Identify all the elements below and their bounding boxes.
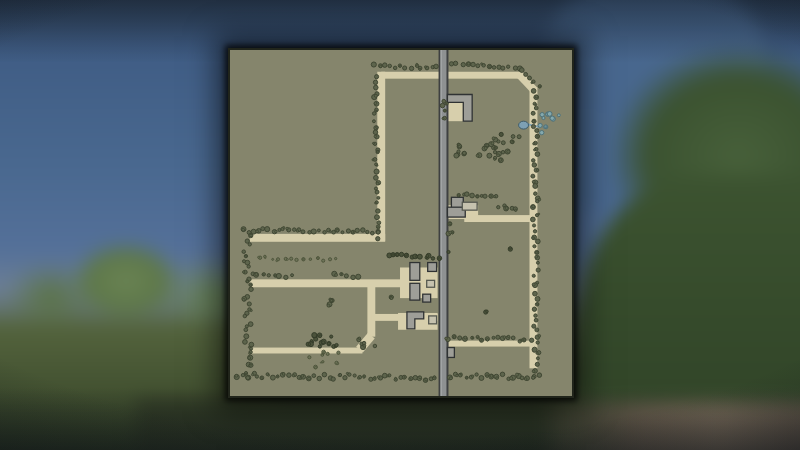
tree-icon [535, 129, 539, 133]
tree-icon [449, 231, 452, 234]
tree-icon [496, 377, 499, 380]
tree-icon [357, 377, 359, 379]
tree-icon [282, 373, 285, 376]
tree-icon [338, 374, 340, 376]
tree-icon [533, 184, 538, 189]
tree-icon [534, 314, 538, 318]
tree-icon [250, 234, 253, 237]
tree-icon [323, 352, 325, 354]
tree-icon [533, 230, 536, 233]
tree-icon [458, 144, 460, 146]
tree-icon [475, 373, 478, 376]
tree-icon [248, 346, 250, 348]
tree-icon [505, 207, 508, 210]
tree-icon [375, 202, 377, 204]
tree-icon [539, 86, 541, 88]
tree-icon [507, 335, 509, 337]
tree-icon [472, 337, 474, 339]
tree-icon [557, 114, 560, 117]
tree-icon [323, 231, 327, 235]
tree-icon [515, 209, 517, 211]
tree-icon [536, 352, 538, 354]
tree-icon [458, 195, 460, 197]
path-horizontal-3 [252, 348, 363, 354]
tree-icon [534, 106, 538, 110]
tree-icon [409, 66, 413, 70]
tree-icon [308, 343, 311, 346]
tree-icon [374, 175, 379, 180]
tree-icon [374, 94, 377, 97]
tree-icon [328, 342, 331, 345]
tree-icon [286, 258, 288, 260]
tree-icon [337, 363, 339, 365]
tree-icon [337, 351, 340, 354]
tree-icon [537, 373, 542, 378]
tree-icon [392, 254, 395, 257]
tree-icon [532, 237, 535, 240]
tree-icon [376, 126, 379, 129]
tree-icon [370, 231, 374, 235]
tree-icon [453, 336, 455, 338]
tree-icon [517, 135, 521, 139]
tree-icon [375, 190, 379, 194]
tree-icon [520, 376, 524, 380]
tree-icon [531, 124, 535, 128]
tree-icon [531, 159, 535, 163]
tree-icon [242, 250, 246, 254]
tree-icon [388, 64, 392, 68]
tree-icon [317, 229, 320, 232]
tree-icon [535, 362, 539, 366]
tree-icon [322, 341, 325, 344]
minimap[interactable] [228, 48, 574, 398]
tree-icon [426, 254, 429, 257]
tree-icon [373, 130, 378, 135]
tree-icon [296, 230, 298, 232]
tree-icon [302, 258, 304, 260]
tree-icon [244, 328, 248, 332]
tree-icon [405, 253, 408, 256]
tree-icon [248, 322, 253, 327]
tree-icon [540, 112, 544, 116]
tree-icon [417, 254, 422, 259]
tree-icon [275, 230, 278, 233]
tree-icon [241, 373, 244, 376]
tree-icon [312, 333, 317, 338]
tree-icon [341, 231, 344, 234]
tree-icon [493, 196, 495, 198]
road-top [381, 72, 521, 79]
tree-icon [467, 62, 470, 65]
tree-icon [486, 375, 489, 378]
tree-icon [268, 374, 270, 376]
tree-icon [500, 372, 505, 377]
tree-icon [515, 373, 518, 376]
tree-icon [476, 195, 478, 197]
tree-icon [476, 154, 479, 157]
tree-icon [499, 132, 503, 136]
tree-icon [387, 375, 389, 377]
tree-icon [425, 378, 428, 381]
tree-icon [535, 328, 539, 332]
tree-icon [449, 377, 452, 380]
tree-icon [242, 228, 245, 231]
tree-icon [250, 363, 252, 365]
tree-icon [532, 347, 537, 352]
tree-icon [377, 376, 380, 379]
tree-icon [491, 142, 494, 145]
blurred-dirt-road [548, 403, 800, 450]
tree-icon [327, 304, 330, 307]
tree-icon [246, 376, 250, 380]
tree-icon [449, 222, 451, 224]
tree-icon [376, 182, 379, 185]
tree-icon [532, 324, 536, 328]
tree-icon [377, 227, 379, 229]
scene [0, 0, 800, 450]
tree-icon [383, 63, 388, 68]
tree-icon [377, 196, 380, 199]
tree-icon [372, 142, 374, 144]
tree-icon [335, 274, 338, 277]
building-roadside-shed [447, 348, 454, 358]
tree-icon [328, 258, 331, 261]
tree-icon [366, 230, 369, 233]
tree-icon [454, 153, 459, 158]
tree-icon [535, 104, 537, 106]
tree-icon [255, 273, 258, 276]
tree-icon [445, 337, 448, 340]
tree-icon [531, 111, 535, 115]
tree-icon [536, 200, 539, 203]
tree-icon [256, 230, 259, 233]
tree-icon [528, 76, 532, 80]
tree-icon [355, 228, 359, 232]
tree-icon [453, 61, 457, 65]
tree-icon [329, 230, 331, 232]
tree-icon [532, 283, 535, 286]
tree-icon [375, 75, 379, 79]
tree-icon [501, 66, 505, 70]
tree-icon [374, 376, 376, 378]
tree-icon [470, 193, 475, 198]
tree-icon [346, 372, 348, 374]
tree-icon [460, 373, 462, 375]
tree-icon [456, 374, 459, 377]
tree-icon [532, 163, 537, 168]
tree-icon [535, 95, 538, 98]
tree-icon [248, 356, 251, 359]
tree-icon [292, 228, 296, 232]
tree-icon [351, 231, 353, 233]
tree-icon [283, 226, 285, 228]
tree-icon [363, 377, 365, 379]
tree-icon [284, 275, 288, 279]
tree-icon [287, 373, 292, 378]
tree-icon [245, 325, 248, 328]
tree-icon [487, 153, 492, 158]
tree-icon [511, 135, 515, 139]
tree-icon [372, 112, 376, 116]
tree-icon [295, 258, 298, 261]
tree-icon [351, 275, 356, 280]
tree-icon [540, 130, 544, 134]
tree-icon [431, 257, 435, 261]
tree-icon [533, 149, 535, 151]
tree-icon [243, 340, 248, 345]
tree-icon [250, 309, 252, 311]
tree-icon [433, 376, 435, 378]
tree-icon [440, 103, 445, 108]
tree-icon [484, 147, 487, 150]
tree-icon [507, 150, 510, 153]
tree-icon [376, 209, 381, 214]
tree-icon [509, 247, 512, 250]
tree-icon [506, 65, 509, 68]
tree-icon [486, 144, 489, 147]
tree-icon [331, 300, 333, 302]
tree-icon [272, 258, 274, 260]
tree-icon [320, 362, 321, 363]
tree-icon [362, 341, 366, 345]
tree-icon [536, 261, 539, 264]
tree-icon [489, 195, 492, 198]
tree-icon [458, 336, 462, 340]
tree-icon [492, 336, 495, 339]
tree-icon [495, 147, 497, 149]
tree-icon [532, 180, 535, 183]
tree-icon [377, 221, 381, 225]
tree-icon [511, 140, 513, 142]
tree-icon [536, 357, 539, 360]
tree-icon [442, 117, 444, 119]
tree-icon [276, 273, 281, 278]
tree-icon [276, 260, 278, 262]
tree-icon [532, 224, 535, 227]
tree-icon [376, 230, 380, 234]
tree-icon [322, 372, 327, 377]
tree-icon [532, 205, 535, 208]
tree-icon [374, 85, 379, 90]
tree-icon [419, 376, 422, 379]
tree-icon [547, 111, 552, 116]
building-lower-shed [429, 316, 437, 324]
tree-icon [462, 151, 466, 155]
tree-icon [461, 62, 465, 66]
tree-icon [532, 274, 535, 277]
tree-icon [535, 152, 540, 157]
tree-icon [373, 80, 377, 84]
tree-icon [466, 377, 468, 379]
tree-icon [444, 110, 446, 112]
tree-icon [245, 255, 247, 257]
building-farm-barn1 [410, 263, 420, 281]
tree-icon [346, 229, 350, 233]
tree-icon [379, 65, 381, 67]
tree-icon [494, 158, 496, 160]
tree-icon [524, 378, 527, 381]
tree-icon [358, 337, 360, 339]
tree-icon [369, 377, 373, 381]
tree-icon [537, 135, 540, 138]
tree-icon [524, 72, 528, 76]
tree-icon [301, 230, 305, 234]
tree-icon [286, 227, 289, 230]
tree-icon [265, 227, 270, 232]
tree-icon [533, 143, 535, 145]
tree-icon [374, 169, 379, 174]
tree-icon [497, 154, 500, 157]
tree-icon [319, 335, 322, 338]
tree-icon [531, 174, 535, 178]
tree-icon [248, 243, 251, 246]
tree-icon [438, 258, 441, 261]
tree-icon [464, 336, 467, 339]
path-horizontal-1 [250, 234, 385, 242]
tree-icon [457, 150, 460, 153]
tree-icon [535, 255, 538, 258]
tree-icon [465, 192, 470, 197]
tree-icon [374, 135, 377, 138]
tree-icon [534, 318, 538, 322]
tree-icon [538, 335, 541, 338]
path-horizontal-2 [250, 279, 404, 287]
tree-icon [247, 265, 250, 268]
tree-icon [545, 126, 547, 128]
tree-icon [477, 337, 479, 339]
tree-icon [479, 376, 484, 381]
tree-icon [322, 259, 325, 262]
tree-icon [382, 373, 387, 378]
tree-icon [245, 260, 250, 265]
tree-icon [331, 377, 335, 381]
main-road-line [441, 50, 442, 396]
tree-icon [530, 217, 535, 222]
tree-icon [343, 376, 347, 380]
tree-icon [374, 102, 377, 105]
tree-icon [376, 237, 380, 241]
tree-icon [251, 229, 256, 234]
building-farm-barn2 [410, 283, 420, 300]
tree-icon [535, 296, 540, 301]
tree-icon [511, 336, 515, 340]
tree-icon [235, 374, 238, 377]
tree-icon [277, 375, 279, 377]
tree-icon [531, 82, 533, 84]
tree-icon [532, 307, 536, 311]
tree-icon [483, 194, 487, 198]
tree-icon [312, 374, 316, 378]
tree-icon [531, 89, 536, 94]
tree-icon [533, 245, 536, 248]
tree-icon [531, 376, 534, 379]
tree-icon [301, 375, 304, 378]
tree-icon [489, 66, 492, 69]
tree-icon [373, 344, 377, 348]
tree-icon [533, 291, 538, 296]
tree-icon [536, 268, 540, 272]
tree-icon [317, 376, 322, 381]
tree-icon [270, 375, 275, 380]
tree-icon [536, 341, 539, 344]
tree-icon [315, 366, 317, 368]
tree-icon [290, 257, 293, 260]
tree-icon [330, 335, 333, 338]
tree-icon [247, 302, 251, 306]
tree-icon [244, 334, 249, 339]
tree-icon [476, 64, 480, 68]
tree-icon [251, 373, 253, 375]
tree-icon [292, 375, 294, 377]
tree-icon [550, 116, 554, 120]
tree-icon [326, 352, 329, 355]
tree-icon [424, 66, 426, 68]
tree-icon [538, 123, 542, 127]
tree-icon [490, 374, 493, 377]
tree-icon [471, 375, 473, 377]
tree-icon [496, 335, 500, 339]
tree-icon [247, 281, 249, 283]
tree-icon [243, 314, 247, 318]
tree-icon [486, 310, 489, 313]
tree-icon [532, 370, 535, 373]
tree-icon [529, 338, 533, 342]
tree-icon [372, 159, 374, 161]
tree-icon [447, 250, 450, 253]
tree-icon [334, 257, 336, 259]
tree-icon [503, 336, 506, 339]
tree-icon [249, 287, 254, 292]
tree-icon [536, 251, 538, 253]
tree-icon [480, 339, 483, 342]
tree-icon [395, 377, 397, 379]
tree-icon [419, 68, 421, 70]
tree-icon [471, 62, 476, 67]
building-midright-slab [462, 202, 477, 210]
tree-icon [309, 258, 312, 261]
path-midright [464, 215, 532, 222]
tree-icon [519, 68, 524, 73]
tree-icon [499, 158, 502, 161]
tree-icon [434, 64, 439, 69]
tree-icon [249, 352, 251, 354]
tree-icon [510, 377, 513, 380]
tree-icon [261, 227, 265, 231]
tree-icon [537, 303, 539, 305]
tree-icon [376, 165, 378, 167]
tree-icon [255, 375, 258, 378]
tree-icon [375, 215, 380, 220]
tree-icon [250, 284, 252, 286]
tree-icon [336, 229, 339, 232]
tree-icon [258, 256, 260, 258]
tree-icon [492, 137, 495, 140]
tree-icon [311, 229, 316, 234]
minimap-canvas[interactable] [230, 50, 572, 396]
tree-icon [532, 120, 535, 123]
tree-icon [308, 356, 311, 359]
building-farm-shed2 [423, 294, 431, 302]
tree-icon [534, 192, 538, 196]
tree-icon [481, 63, 483, 65]
tree-icon [308, 377, 311, 380]
tree-icon [371, 62, 376, 67]
tree-icon [416, 63, 418, 65]
tree-icon [501, 141, 505, 145]
tree-icon [335, 343, 338, 346]
tree-icon [536, 169, 539, 172]
tree-icon [399, 65, 401, 67]
